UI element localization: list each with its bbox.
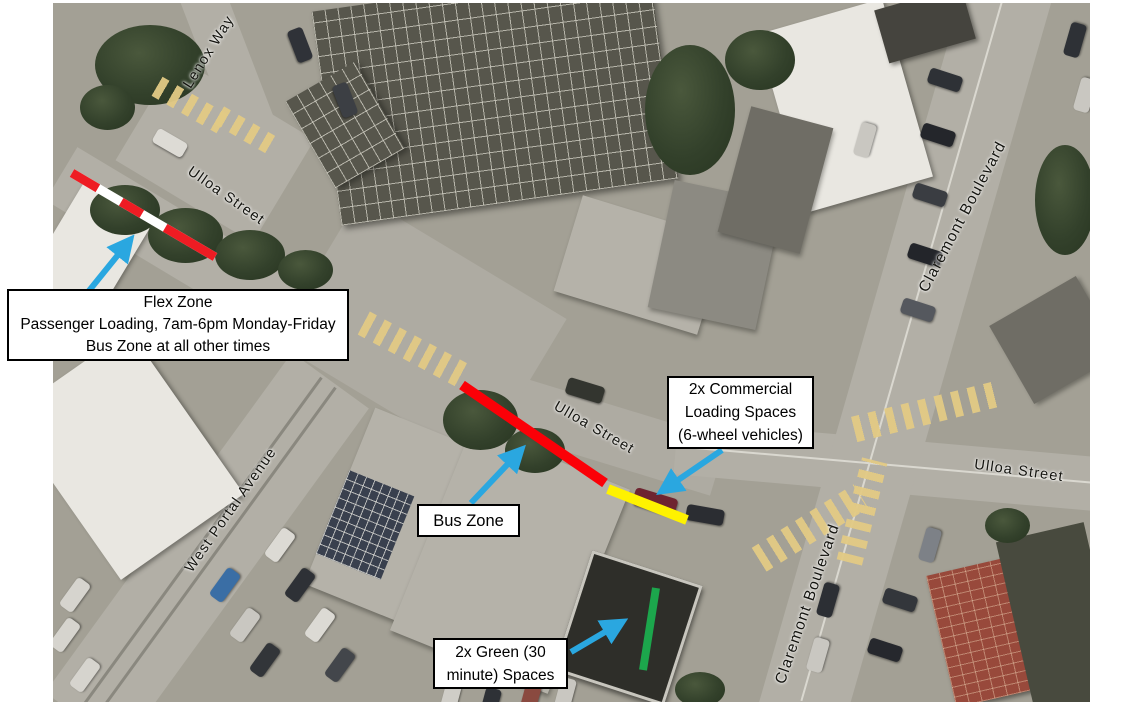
green-spaces-callout-line2: minute) Spaces bbox=[435, 664, 566, 687]
trees bbox=[985, 508, 1030, 543]
green-spaces-callout: 2x Green (30 minute) Spaces bbox=[433, 638, 568, 689]
trees bbox=[80, 85, 135, 130]
trees bbox=[148, 208, 223, 263]
flex-zone-callout-line3: Bus Zone at all other times bbox=[9, 336, 347, 358]
green-spaces-callout-line1: 2x Green (30 bbox=[435, 641, 566, 664]
bus-zone-callout-line1: Bus Zone bbox=[419, 510, 518, 532]
trees bbox=[278, 250, 333, 290]
commercial-loading-callout: 2x Commercial Loading Spaces (6-wheel ve… bbox=[667, 376, 814, 449]
trees bbox=[505, 428, 565, 473]
flex-zone-callout-line1: Flex Zone bbox=[9, 292, 347, 314]
commercial-loading-callout-line2: Loading Spaces bbox=[669, 401, 812, 424]
aerial-map-page: Lenox Way Ulloa Street Ulloa Street Ullo… bbox=[0, 0, 1124, 717]
flex-zone-callout: Flex Zone Passenger Loading, 7am-6pm Mon… bbox=[7, 289, 349, 361]
commercial-loading-callout-line1: 2x Commercial bbox=[669, 378, 812, 401]
trees bbox=[1035, 145, 1095, 255]
page-margin bbox=[0, 702, 1124, 717]
page-margin bbox=[53, 0, 1090, 3]
bus-zone-callout: Bus Zone bbox=[417, 504, 520, 537]
trees bbox=[645, 45, 735, 175]
trees bbox=[725, 30, 795, 90]
page-margin bbox=[1090, 0, 1124, 717]
flex-zone-callout-line2: Passenger Loading, 7am-6pm Monday-Friday bbox=[9, 314, 347, 336]
commercial-loading-callout-line3: (6-wheel vehicles) bbox=[669, 424, 812, 447]
trees bbox=[215, 230, 285, 280]
